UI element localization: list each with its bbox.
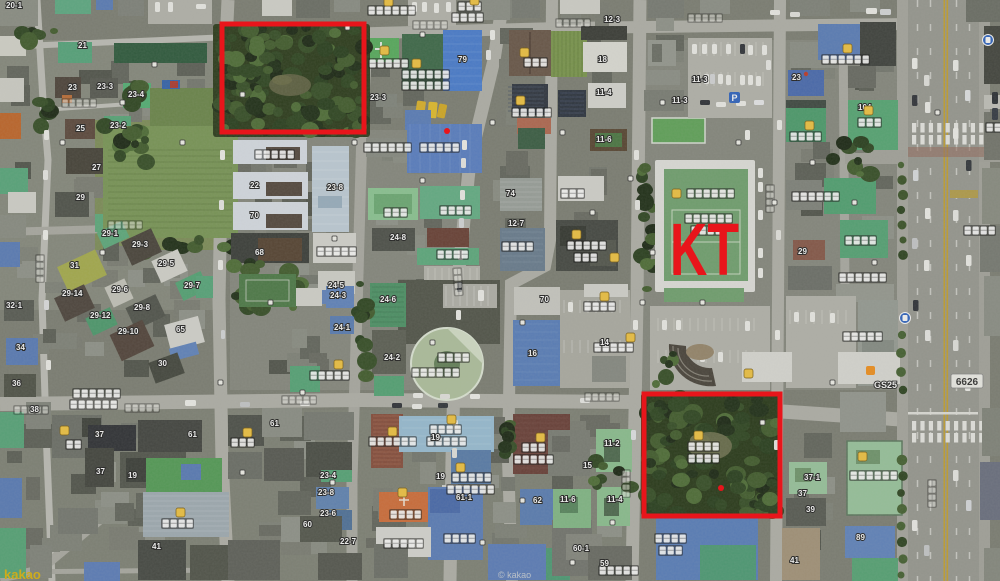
svg-text:KT: KT — [670, 208, 739, 291]
